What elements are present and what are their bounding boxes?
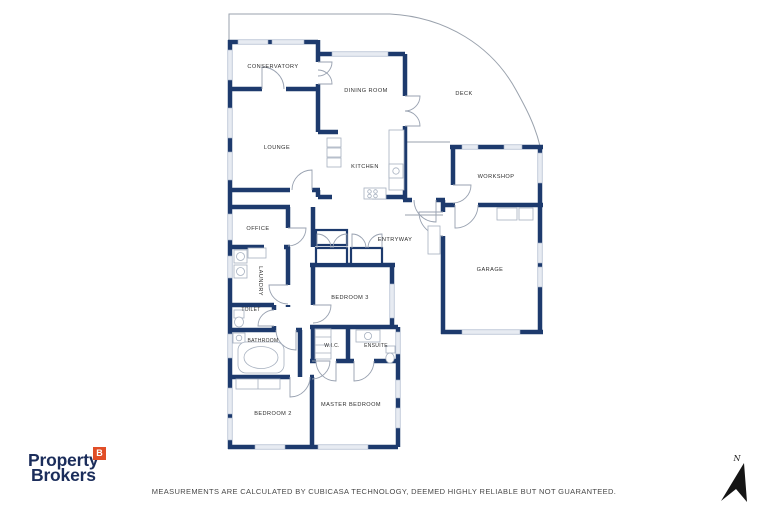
floor-plan-page: CONSERVATORY DINING ROOM DECK LOUNGE KIT… (0, 0, 768, 512)
room-label-workshop: WORKSHOP (478, 174, 515, 180)
room-label-wic: W.I.C. (324, 343, 339, 349)
room-label-bedroom-2: BEDROOM 2 (254, 411, 292, 417)
north-arrow-icon (721, 463, 747, 502)
room-label-deck: DECK (455, 91, 472, 97)
wardrobes (316, 230, 382, 264)
room-label-laundry: LAUNDRY (257, 266, 263, 296)
room-label-bedroom-3: BEDROOM 3 (331, 295, 369, 301)
measurement-disclaimer: MEASUREMENTS ARE CALCULATED BY CUBICASA … (0, 487, 768, 496)
north-label: N (733, 454, 742, 463)
room-label-ensuite: ENSUITE (364, 343, 388, 349)
floor-plan: CONSERVATORY DINING ROOM DECK LOUNGE KIT… (0, 0, 768, 512)
room-label-bathroom: BATHROOM (248, 338, 279, 344)
property-brokers-logo: Property Brokers (28, 453, 98, 483)
garage-storage (497, 208, 517, 220)
lounge-shelf (327, 138, 341, 147)
room-label-kitchen: KITCHEN (351, 164, 379, 170)
kitchen-counter (389, 130, 404, 190)
room-label-office: OFFICE (246, 226, 269, 232)
logo-b-badge-icon: B (93, 447, 106, 460)
room-label-lounge: LOUNGE (264, 145, 290, 151)
room-label-toilet: TOILET (241, 307, 260, 313)
room-label-entryway: ENTRYWAY (378, 237, 413, 243)
room-label-conservatory: CONSERVATORY (247, 64, 298, 70)
logo-line2: Brokers (28, 468, 98, 483)
room-label-garage: GARAGE (477, 267, 504, 273)
room-label-dining-room: DINING ROOM (344, 88, 387, 94)
room-label-master-bedroom: MASTER BEDROOM (321, 402, 381, 408)
entry-closet (428, 226, 440, 254)
